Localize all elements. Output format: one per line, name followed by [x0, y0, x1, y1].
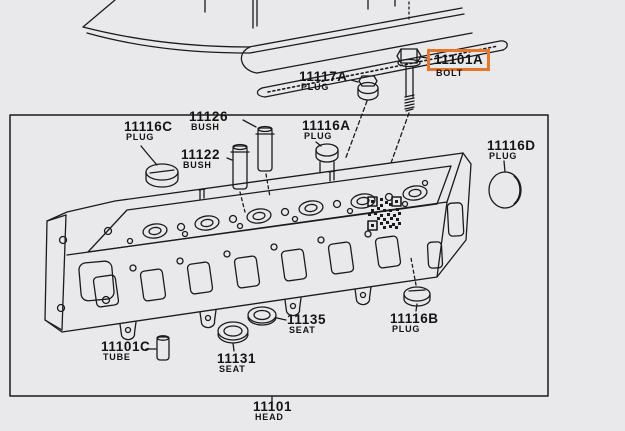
part-label-11116a[interactable]: 11116A PLUG	[302, 119, 351, 141]
part-name: PLUG	[304, 132, 332, 141]
plug-11116d-icon	[489, 161, 521, 208]
diagram-line-art	[0, 0, 625, 431]
right-end-detail	[423, 181, 464, 269]
plug-11116c-icon	[141, 146, 178, 187]
part-label-11131[interactable]: 11131 SEAT	[217, 352, 256, 374]
part-label-11101a[interactable]: 11101A BOLT	[433, 53, 490, 78]
part-label-11116c[interactable]: 11116C PLUG	[124, 120, 173, 142]
seat-11131-icon	[218, 322, 248, 351]
left-flange	[58, 228, 115, 312]
part-name: BUSH	[191, 123, 220, 132]
part-name: BOLT	[436, 69, 463, 78]
part-label-11116b[interactable]: 11116B PLUG	[390, 312, 439, 334]
part-name: PLUG	[301, 83, 329, 92]
assembly-caption-11101[interactable]: 11101 HEAD	[253, 400, 292, 422]
qr-watermark	[368, 197, 401, 230]
part-name: SEAT	[289, 326, 316, 335]
part-name: SEAT	[219, 365, 246, 374]
bottom-tabs	[120, 287, 371, 340]
bush-11122-icon	[227, 145, 249, 213]
part-label-11117a[interactable]: 11117A PLUG	[299, 70, 348, 92]
part-name: PLUG	[126, 133, 154, 142]
diagram-border-box	[10, 115, 548, 396]
plug-11116a-icon	[316, 142, 338, 172]
part-label-11116d[interactable]: 11116D PLUG	[487, 139, 536, 161]
part-label-11126[interactable]: 11126 BUSH	[189, 110, 228, 132]
plug-11116b-icon	[404, 258, 430, 311]
part-name: BUSH	[183, 161, 212, 170]
seat-11135-icon	[248, 307, 286, 325]
part-label-11135[interactable]: 11135 SEAT	[287, 313, 326, 335]
part-name: TUBE	[103, 353, 131, 362]
parts-diagram-canvas: 11101A BOLT 11117A PLUG 11116C PLUG 1112…	[0, 0, 625, 431]
part-name: PLUG	[392, 325, 420, 334]
part-name: PLUG	[489, 152, 517, 161]
front-port-windows	[93, 231, 401, 307]
part-label-11122[interactable]: 11122 BUSH	[181, 148, 220, 170]
part-name: HEAD	[255, 413, 284, 422]
part-label-11101c[interactable]: 11101C TUBE	[101, 340, 150, 362]
